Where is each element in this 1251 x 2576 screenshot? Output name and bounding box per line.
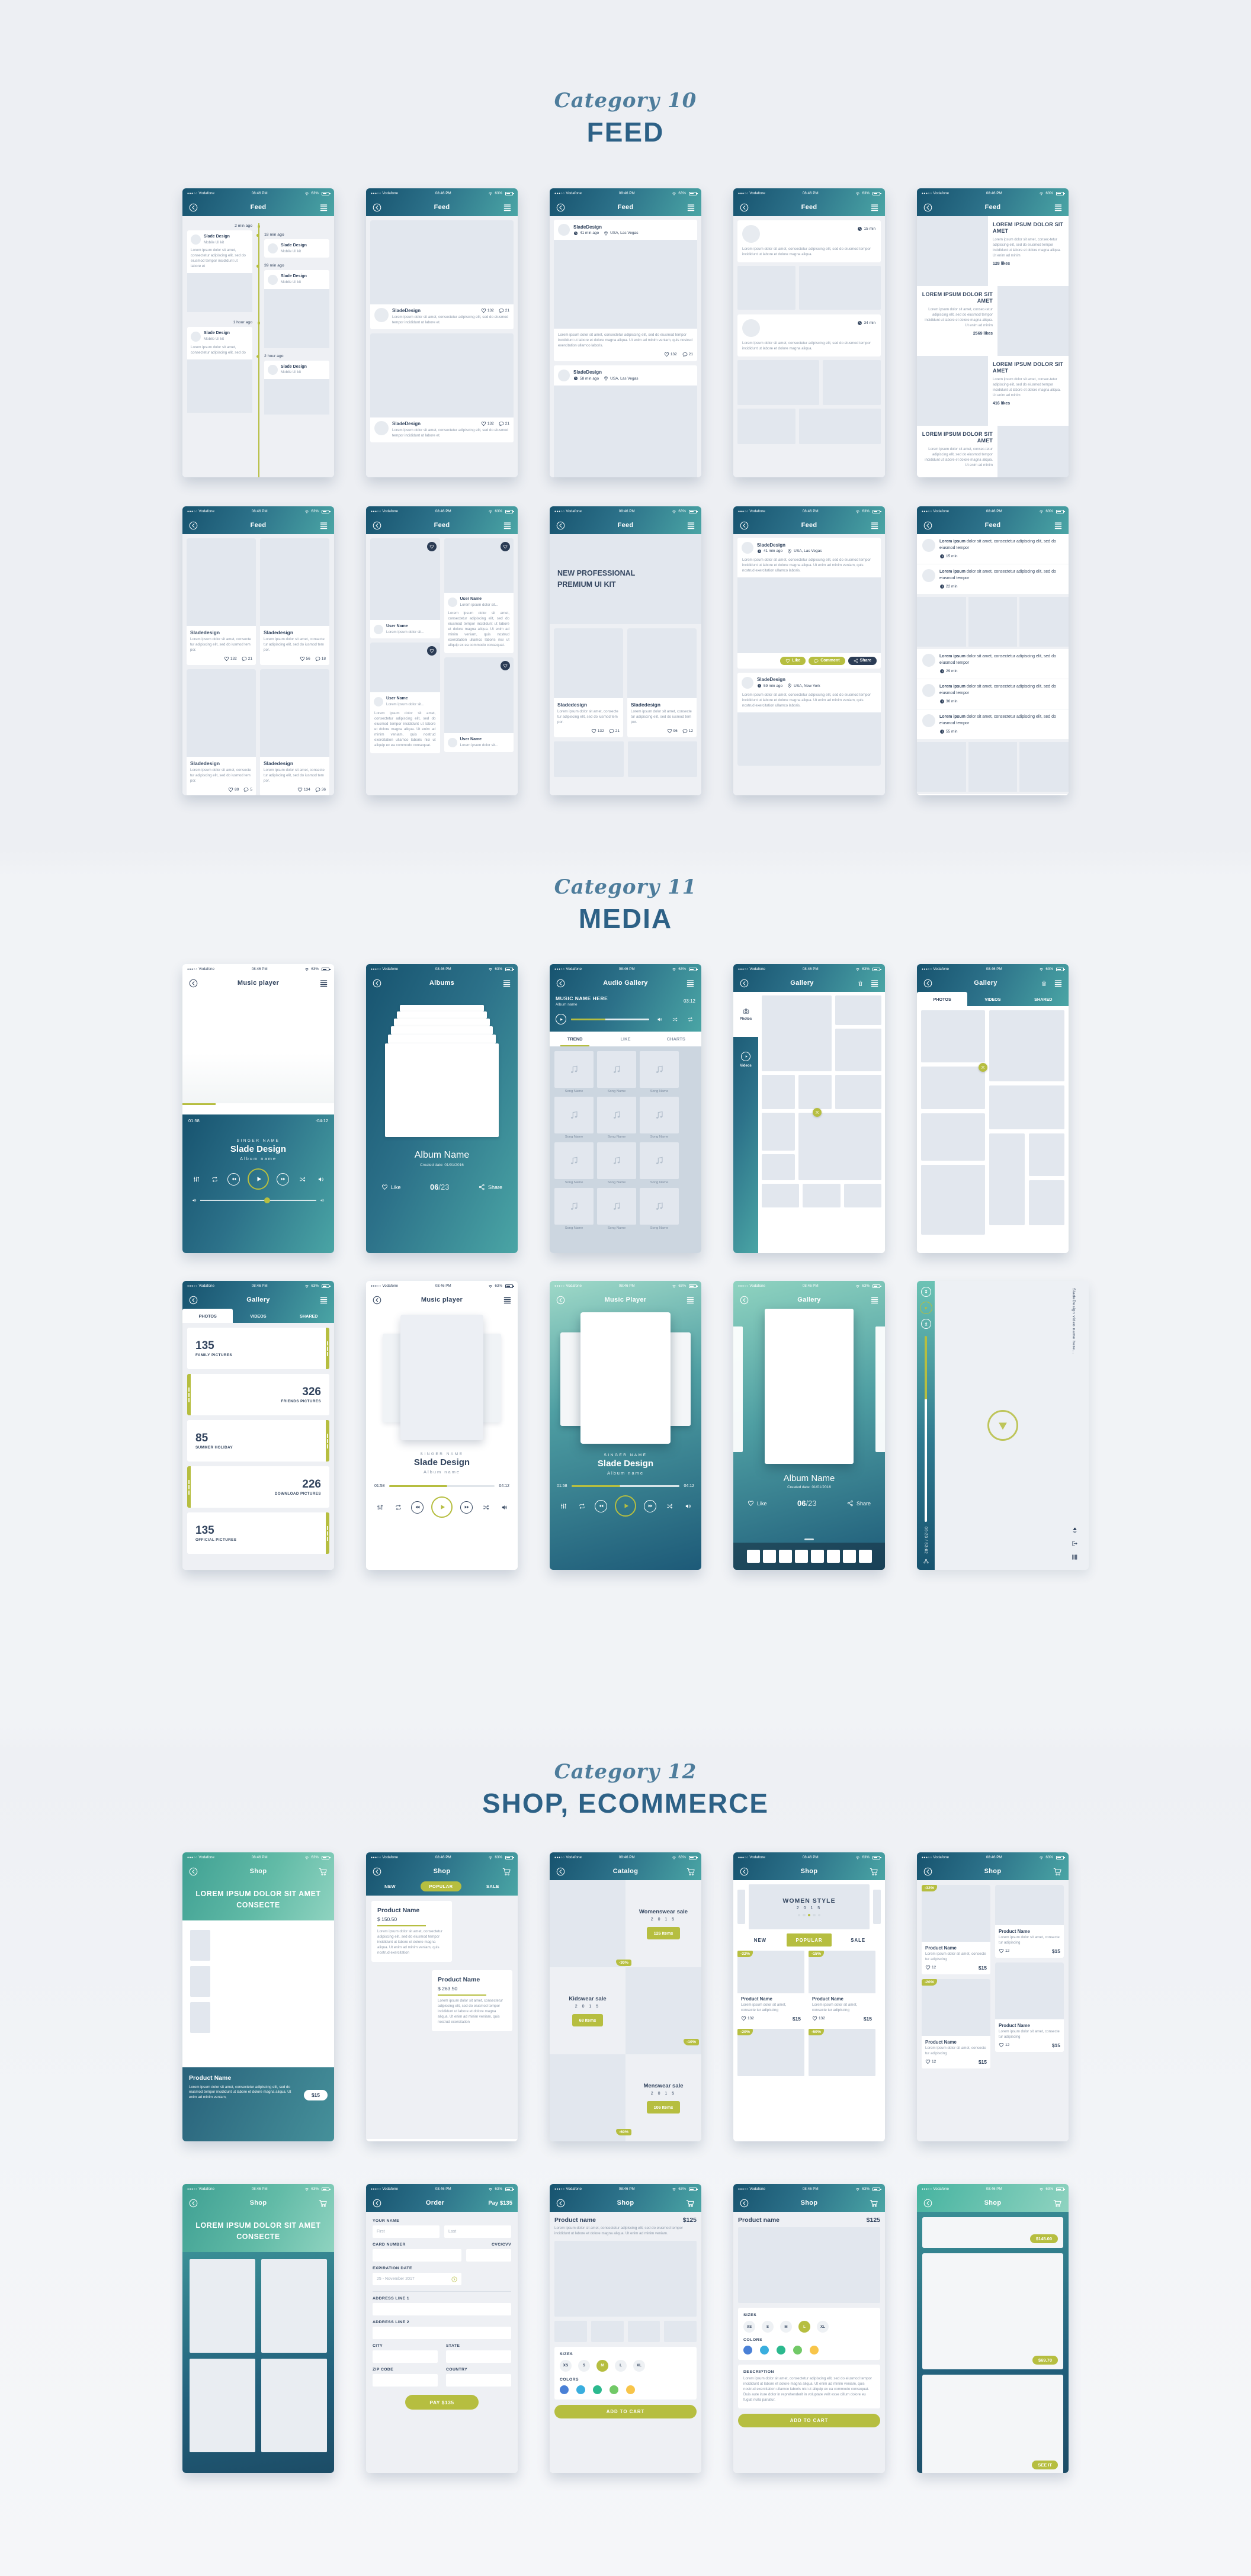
shuffle-button[interactable] <box>480 1502 491 1512</box>
feed-post-card[interactable]: SladeDesign 58 min ago USA, Las Vegas <box>554 365 697 477</box>
gallery-photo[interactable] <box>835 1075 881 1109</box>
feed-post-card[interactable]: Slade DesignMobile UI kit <box>264 361 329 415</box>
gallery-photo[interactable] <box>798 1113 881 1180</box>
shuffle-button[interactable] <box>664 1501 675 1511</box>
menu-button[interactable] <box>318 520 329 531</box>
add-to-cart-button[interactable]: ADD TO CART <box>554 2405 697 2418</box>
product-card[interactable]: Product Name Lorem ipsum dolor sit amet,… <box>995 1962 1064 2052</box>
category-tile[interactable] <box>190 2359 255 2452</box>
product-banner-card[interactable]: SEE IT <box>922 2375 1063 2473</box>
comment-button[interactable]: Comment <box>809 657 845 665</box>
menu-button[interactable] <box>685 202 696 213</box>
comments-count[interactable]: 21 <box>499 421 509 426</box>
carousel-prev-photo[interactable] <box>733 1326 743 1452</box>
gallery-photo[interactable] <box>762 1184 799 1207</box>
feed-post-card[interactable]: SladeDesign 41 min ago USA, Las Vegas Lo… <box>737 538 881 669</box>
back-button[interactable] <box>371 1295 382 1305</box>
back-button[interactable] <box>371 978 382 988</box>
back-button[interactable] <box>922 202 933 213</box>
menu-button[interactable] <box>869 202 880 213</box>
back-button[interactable] <box>371 2198 382 2208</box>
hero-banner[interactable]: WOMEN STYLE 2 0 1 5 <box>749 1884 870 1929</box>
gallery-photo[interactable] <box>762 1113 795 1151</box>
color-option[interactable] <box>610 2385 618 2394</box>
size-option[interactable]: S <box>578 2360 590 2372</box>
carousel-current-photo[interactable] <box>765 1309 854 1464</box>
repeat-button[interactable] <box>685 1014 695 1024</box>
cart-button[interactable] <box>318 2198 329 2208</box>
menu-button[interactable] <box>502 1295 512 1305</box>
tab[interactable]: SHARED <box>1018 992 1069 1006</box>
comments-count[interactable]: 18 <box>315 656 326 661</box>
color-option[interactable] <box>560 2385 569 2394</box>
gallery-photo[interactable] <box>762 1075 795 1109</box>
product-card[interactable]: -50% <box>809 2029 875 2076</box>
article-row[interactable]: LOREM IPSUM DOLOR SIT AMETLorem ipsum do… <box>917 426 1069 477</box>
cvc-field[interactable] <box>466 2249 511 2262</box>
volume-button[interactable] <box>654 1014 665 1024</box>
like-button[interactable]: Like <box>748 1500 767 1507</box>
back-button[interactable] <box>555 202 566 213</box>
product-card[interactable]: -20% Product Name Lorem ipsum dolor sit … <box>922 1979 990 2068</box>
album-list-item[interactable]: 326 FRIENDS PICTURES <box>187 1374 329 1415</box>
likes-count[interactable]: 132 <box>591 728 604 734</box>
drag-handle[interactable] <box>326 1420 329 1462</box>
back-button[interactable] <box>188 1295 198 1305</box>
back-button[interactable] <box>739 978 749 988</box>
feed-post-card[interactable]: Slade DesignMobile UI kit <box>264 270 329 348</box>
tab[interactable]: VIDEOS <box>233 1309 283 1323</box>
product-card[interactable]: -32% Product Name Lorem ipsum dolor sit … <box>737 1951 804 2025</box>
back-button[interactable] <box>739 2198 749 2208</box>
article-row[interactable]: LOREM IPSUM DOLOR SIT AMETLorem ipsum do… <box>917 356 1069 426</box>
menu-button[interactable] <box>502 978 512 988</box>
gallery-photo[interactable] <box>762 995 832 1071</box>
share-button[interactable]: Share <box>479 1184 502 1190</box>
color-option[interactable] <box>810 2346 819 2355</box>
back-button[interactable] <box>739 1295 749 1305</box>
color-option[interactable] <box>593 2385 602 2394</box>
size-option[interactable]: L <box>615 2360 627 2372</box>
back-button[interactable] <box>555 1866 566 1877</box>
size-option[interactable]: XL <box>633 2360 645 2372</box>
state-field[interactable] <box>446 2350 511 2363</box>
price-button[interactable]: $69.70 <box>1032 2356 1058 2365</box>
gallery-photo[interactable] <box>921 1067 985 1109</box>
address1-field[interactable] <box>373 2303 511 2315</box>
likes-count[interactable]: 56 <box>300 656 310 661</box>
comments-count[interactable]: 12 <box>682 728 693 734</box>
size-option[interactable]: M <box>780 2321 792 2333</box>
product-banner-card[interactable]: $69.70 <box>922 2253 1063 2369</box>
back-button[interactable] <box>739 520 749 531</box>
equalizer-button[interactable] <box>558 1501 569 1511</box>
color-option[interactable] <box>777 2346 785 2355</box>
forward-button[interactable] <box>460 1501 473 1514</box>
back-button[interactable] <box>188 1866 198 1877</box>
feed-post-card[interactable]: Slade DesignMobile UI kit Lorem ipsum do… <box>187 230 252 312</box>
menu-button[interactable] <box>869 1295 880 1305</box>
shuffle-button[interactable] <box>669 1014 680 1024</box>
article-row[interactable]: LOREM IPSUM DOLOR SIT AMETLorem ipsum do… <box>917 286 1069 356</box>
comments-count[interactable]: 21 <box>609 728 620 734</box>
menu-button[interactable] <box>685 520 696 531</box>
likes-count[interactable]: 132 <box>224 656 237 661</box>
feed-post-card[interactable]: SladeDesign 41 min ago USA, Las Vegas Lo… <box>554 220 697 361</box>
share-button[interactable]: Share <box>848 657 877 665</box>
feed-grid-card[interactable]: Sladedesign Lorem ipsum dolor sit amet, … <box>554 628 623 737</box>
gallery-photo[interactable] <box>762 1154 795 1180</box>
likes-count[interactable]: 132 <box>812 2016 825 2021</box>
product-image[interactable] <box>738 2227 880 2303</box>
volume-button[interactable] <box>499 1502 509 1512</box>
remove-photo-button[interactable] <box>813 1108 822 1117</box>
photo-carousel[interactable] <box>733 1309 885 1464</box>
drag-handle[interactable] <box>326 1328 329 1369</box>
back-button[interactable] <box>371 1866 382 1877</box>
last-name-field[interactable]: Last <box>444 2225 511 2238</box>
favorite-badge[interactable] <box>501 542 510 551</box>
forward-button[interactable] <box>644 1500 656 1512</box>
comments-count[interactable]: 21 <box>242 656 252 661</box>
news-list-item[interactable]: Lorem ipsum dolor sit amet, consectetur … <box>917 564 1069 595</box>
back-button[interactable] <box>739 1866 749 1877</box>
progress-bar[interactable] <box>389 1485 495 1487</box>
tab[interactable]: CHARTS <box>651 1032 701 1046</box>
user-post-card[interactable]: User NameLorem ipsum dolor sit... Lorem … <box>444 538 514 653</box>
tab[interactable]: TREND <box>550 1032 600 1046</box>
sidebar-item-photos[interactable]: Photos <box>733 992 758 1037</box>
equalizer-button[interactable] <box>374 1502 385 1512</box>
tab[interactable]: VIDEOS <box>967 992 1018 1006</box>
comments-count[interactable]: 21 <box>682 352 693 357</box>
product-card[interactable]: Product Name $ 263.50 Lorem ipsum dolor … <box>432 1970 512 2031</box>
color-option[interactable] <box>760 2346 769 2355</box>
likes-count[interactable]: 132 <box>481 421 494 426</box>
feed-post-card[interactable]: SladeDesign 132 21 Lorem ipsum dolor sit… <box>370 333 514 442</box>
play-button[interactable] <box>920 1302 932 1314</box>
album-stack[interactable] <box>366 992 518 1137</box>
tab-sale[interactable]: SALE <box>835 1933 881 1947</box>
size-option[interactable]: S <box>762 2321 774 2333</box>
gallery-photo[interactable] <box>835 995 881 1025</box>
menu-button[interactable] <box>318 978 329 988</box>
product-card[interactable]: -15% Product Name Lorem ipsum dolor sit … <box>809 1951 875 2025</box>
favorite-badge[interactable] <box>427 646 437 656</box>
likes-count[interactable]: 132 <box>481 308 494 313</box>
back-button[interactable] <box>371 202 382 213</box>
back-button[interactable] <box>555 2198 566 2208</box>
volume-slider[interactable] <box>182 1198 334 1203</box>
product-thumbnail[interactable] <box>554 2321 587 2342</box>
rewind-button[interactable] <box>227 1173 240 1186</box>
catalog-row[interactable]: Menswear sale 2 0 1 5 106 Items <box>550 2054 701 2141</box>
product-card[interactable]: Product Name $ 150.50 Lorem ipsum dolor … <box>371 1901 452 1962</box>
gallery-photo[interactable] <box>921 1010 985 1062</box>
album-stack[interactable] <box>366 1309 518 1446</box>
menu-button[interactable] <box>318 202 329 213</box>
gallery-photo[interactable] <box>844 1184 881 1207</box>
song-item[interactable]: Song Name <box>597 1051 636 1093</box>
first-name-field[interactable]: First <box>373 2225 440 2238</box>
back-button[interactable] <box>922 2198 933 2208</box>
product-card[interactable]: -20% <box>737 2029 804 2076</box>
add-to-cart-button[interactable]: ADD TO CART <box>738 2414 880 2427</box>
sidebar-item-videos[interactable]: Videos <box>733 1037 758 1082</box>
menu-button[interactable] <box>685 978 696 988</box>
feed-post-card[interactable]: SladeDesign 59 min ago USA, New York Lor… <box>737 673 881 766</box>
back-button[interactable] <box>188 202 198 213</box>
drag-handle[interactable] <box>187 1374 191 1415</box>
menu-button[interactable] <box>318 1295 329 1305</box>
song-item[interactable]: Song Name <box>554 1188 594 1230</box>
menu-button[interactable] <box>1053 978 1063 988</box>
product-thumbnail[interactable] <box>190 2002 210 2033</box>
back-button[interactable] <box>922 1866 933 1877</box>
volume-button[interactable] <box>682 1501 693 1511</box>
price-button[interactable]: $145.00 <box>1030 2234 1058 2243</box>
color-option[interactable] <box>793 2346 802 2355</box>
expiration-date-select[interactable]: 25 - November 2017 <box>373 2273 461 2285</box>
menu-button[interactable] <box>1053 520 1063 531</box>
size-option[interactable]: XS <box>743 2321 755 2333</box>
tab[interactable]: PHOTOS <box>182 1309 233 1323</box>
forward-button[interactable] <box>921 1287 931 1297</box>
tab-popular[interactable]: POPULAR <box>421 1881 461 1891</box>
volume-icon[interactable] <box>1072 1527 1078 1533</box>
feed-post-card[interactable]: Slade DesignMobile UI kit <box>264 239 329 258</box>
menu-icon[interactable] <box>1072 1554 1078 1560</box>
menu-button[interactable] <box>685 1295 696 1305</box>
size-option[interactable]: XS <box>560 2360 572 2372</box>
rewind-button[interactable] <box>921 1319 931 1329</box>
filmstrip[interactable] <box>733 1543 885 1570</box>
gallery-photo[interactable] <box>989 1133 1025 1225</box>
tab-popular[interactable]: POPULAR <box>787 1933 832 1947</box>
cart-button[interactable] <box>318 1866 329 1877</box>
items-count-button[interactable]: 106 Items <box>647 2101 681 2114</box>
menu-button[interactable] <box>502 202 512 213</box>
user-post-card[interactable]: User NameLorem ipsum dolor sit... <box>444 657 514 751</box>
song-item[interactable]: Song Name <box>640 1097 679 1139</box>
feed-post-card[interactable]: 34 min Lorem ipsum dolor sit amet, conse… <box>737 314 881 356</box>
menu-button[interactable] <box>1053 202 1063 213</box>
catalog-row[interactable]: Womenswear sale 2 0 1 5 126 Items <box>550 1880 701 1967</box>
song-item[interactable]: Song Name <box>597 1097 636 1139</box>
city-field[interactable] <box>373 2350 438 2363</box>
menu-button[interactable] <box>869 520 880 531</box>
hero-banner[interactable]: NEW PROFESSIONAL PREMIUM UI KIT <box>550 534 701 624</box>
back-button[interactable] <box>188 520 198 531</box>
carousel-next-photo[interactable] <box>875 1326 885 1452</box>
back-button[interactable] <box>555 1295 566 1305</box>
play-button[interactable] <box>431 1496 453 1518</box>
progress-bar[interactable] <box>572 1485 680 1487</box>
carousel-prev[interactable] <box>737 1890 745 1924</box>
song-item[interactable]: Song Name <box>640 1142 679 1184</box>
album-list-item[interactable]: 85 SUMMER HOLIDAY <box>187 1420 329 1462</box>
comments-count[interactable]: 36 <box>315 787 326 792</box>
product-thumbnail[interactable] <box>664 2321 697 2342</box>
product-thumbnail[interactable] <box>190 1966 210 1997</box>
album-list-item[interactable]: 135 OFFICIAL PICTURES <box>187 1512 329 1554</box>
cart-button[interactable] <box>1053 2198 1063 2208</box>
back-button[interactable] <box>555 520 566 531</box>
comments-count[interactable]: 5 <box>243 787 252 792</box>
pay-header-button[interactable]: Pay $135 <box>488 2200 512 2206</box>
user-post-card[interactable]: User NameLorem ipsum dolor sit... Lorem … <box>370 643 440 753</box>
back-button[interactable] <box>922 520 933 531</box>
cart-button[interactable] <box>869 1866 880 1877</box>
address2-field[interactable] <box>373 2327 511 2339</box>
song-item[interactable]: Song Name <box>554 1097 594 1139</box>
cart-button[interactable] <box>685 2198 696 2208</box>
album-stack[interactable] <box>550 1309 701 1446</box>
carousel-dots[interactable] <box>798 1914 821 1917</box>
back-button[interactable] <box>739 202 749 213</box>
back-button[interactable] <box>555 978 566 988</box>
repeat-button[interactable] <box>209 1174 220 1184</box>
remove-photo-button[interactable] <box>979 1063 987 1072</box>
repeat-button[interactable] <box>576 1501 587 1511</box>
export-icon[interactable] <box>1072 1540 1078 1547</box>
size-option[interactable]: XL <box>817 2321 829 2333</box>
album-list-item[interactable]: 226 DOWNLOAD PICTURES <box>187 1466 329 1508</box>
progress-bar[interactable] <box>182 1103 334 1105</box>
product-image[interactable] <box>554 2241 697 2317</box>
rewind-button[interactable] <box>411 1501 424 1514</box>
feed-grid-card[interactable]: Sladedesign Lorem ipsum dolor sit amet, … <box>627 628 697 737</box>
zip-field[interactable] <box>373 2374 438 2387</box>
category-tile[interactable] <box>261 2359 327 2452</box>
favorite-badge[interactable] <box>427 542 437 551</box>
feed-post-card[interactable]: 15 min Lorem ipsum dolor sit amet, conse… <box>737 220 881 262</box>
back-button[interactable] <box>188 2198 198 2208</box>
drag-handle[interactable] <box>187 1466 191 1508</box>
catalog-row[interactable]: Kidswear sale 2 0 1 5 68 Items <box>550 1967 701 2054</box>
gallery-photo[interactable] <box>921 1165 985 1235</box>
play-button[interactable] <box>556 1014 566 1024</box>
news-list-item[interactable]: Lorem ipsum dolor sit amet, consectetur … <box>917 709 1069 740</box>
feed-grid-card[interactable]: Sladedesign Lorem ipsum dolor sit amet, … <box>260 669 329 795</box>
news-list-item[interactable]: Lorem ipsum dolor sit amet, consectetur … <box>917 534 1069 564</box>
feed-post-card[interactable]: SladeDesign 132 21 Lorem ipsum dolor sit… <box>370 220 514 329</box>
play-button[interactable] <box>615 1495 636 1517</box>
tab[interactable]: PHOTOS <box>917 992 967 1006</box>
trash-button[interactable] <box>855 978 865 988</box>
news-list-item[interactable]: Lorem ipsum dolor sit amet, consectetur … <box>917 649 1069 679</box>
menu-button[interactable] <box>869 978 880 988</box>
trash-button[interactable] <box>1038 978 1049 988</box>
song-item[interactable]: Song Name <box>597 1188 636 1230</box>
gallery-photo[interactable] <box>803 1184 840 1207</box>
article-row[interactable]: LOREM IPSUM DOLOR SIT AMETLorem ipsum do… <box>917 216 1069 286</box>
user-post-card[interactable]: User NameLorem ipsum dolor sit... <box>370 538 440 638</box>
pay-button[interactable]: PAY $135 <box>405 2395 479 2410</box>
likes-count[interactable]: 132 <box>741 2016 754 2021</box>
comments-count[interactable]: 21 <box>499 308 509 313</box>
back-button[interactable] <box>188 978 198 988</box>
size-option[interactable]: M <box>596 2360 608 2372</box>
feed-grid-card[interactable]: Sladedesign Lorem ipsum dolor sit amet, … <box>187 538 256 665</box>
likes-count[interactable]: 89 <box>228 787 239 792</box>
color-option[interactable] <box>576 2385 585 2394</box>
likes-count[interactable]: 12 <box>925 2059 936 2064</box>
cart-button[interactable] <box>685 1866 696 1877</box>
back-button[interactable] <box>371 520 382 531</box>
drag-handle[interactable] <box>326 1512 329 1554</box>
product-card[interactable]: Product Name Lorem ipsum dolor sit amet,… <box>995 1885 1064 1958</box>
likes-count[interactable]: 132 <box>664 352 677 357</box>
items-count-button[interactable]: 126 Items <box>647 1927 681 1939</box>
category-tile[interactable] <box>190 2259 255 2353</box>
likes-count[interactable]: 12 <box>999 2042 1009 2048</box>
cart-button[interactable] <box>502 1866 512 1877</box>
song-item[interactable]: Song Name <box>640 1188 679 1230</box>
share-button[interactable]: Share <box>847 1500 871 1507</box>
gallery-photo[interactable] <box>989 1010 1064 1081</box>
volume-button[interactable] <box>315 1174 326 1184</box>
progress-bar[interactable] <box>571 1019 649 1020</box>
product-banner-card[interactable]: $145.00 <box>922 2217 1063 2248</box>
tab-new[interactable]: NEW <box>737 1933 783 1947</box>
gallery-photo[interactable] <box>1029 1133 1064 1176</box>
gallery-photo[interactable] <box>989 1085 1064 1129</box>
product-thumbnail[interactable] <box>190 1930 210 1961</box>
song-item[interactable]: Song Name <box>554 1142 594 1184</box>
play-button[interactable] <box>248 1168 269 1190</box>
forward-button[interactable] <box>277 1173 289 1186</box>
see-it-button[interactable]: SEE IT <box>1032 2461 1058 2469</box>
likes-count[interactable]: 12 <box>999 1948 1009 1954</box>
tab[interactable]: SHARED <box>284 1309 334 1323</box>
gallery-photo[interactable] <box>798 1075 832 1109</box>
likes-count[interactable]: 134 <box>297 787 310 792</box>
rewind-button[interactable] <box>595 1500 607 1512</box>
card-number-field[interactable] <box>373 2249 461 2262</box>
cart-button[interactable] <box>869 2198 880 2208</box>
tab-new[interactable]: NEW <box>384 1884 396 1889</box>
feed-grid-card[interactable]: Sladedesign Lorem ipsum dolor sit amet, … <box>187 669 256 795</box>
repeat-button[interactable] <box>393 1502 403 1512</box>
tab[interactable]: LIKE <box>600 1032 650 1046</box>
carousel-next[interactable] <box>873 1890 881 1924</box>
color-option[interactable] <box>626 2385 635 2394</box>
song-item[interactable]: Song Name <box>640 1051 679 1093</box>
gallery-photo[interactable] <box>1029 1180 1064 1225</box>
likes-count[interactable]: 96 <box>667 728 678 734</box>
product-thumbnail[interactable] <box>628 2321 660 2342</box>
product-card[interactable]: -32% Product Name Lorem ipsum dolor sit … <box>922 1885 990 1974</box>
menu-button[interactable] <box>502 520 512 531</box>
feed-post-card[interactable]: Slade DesignMobile UI kit Lorem ipsum do… <box>187 327 252 412</box>
like-button[interactable]: Like <box>780 657 806 665</box>
size-option[interactable]: L <box>798 2321 810 2333</box>
product-thumbnail[interactable] <box>591 2321 624 2342</box>
country-field[interactable] <box>446 2374 511 2387</box>
news-list-item[interactable]: Lorem ipsum dolor sit amet, consectetur … <box>917 679 1069 709</box>
items-count-button[interactable]: 68 Items <box>572 2014 604 2026</box>
feed-grid-card[interactable]: Sladedesign Lorem ipsum dolor sit amet, … <box>260 538 329 665</box>
like-button[interactable]: Like <box>381 1184 401 1190</box>
back-button[interactable] <box>922 978 933 988</box>
shuffle-button[interactable] <box>297 1174 307 1184</box>
equalizer-button[interactable] <box>191 1174 201 1184</box>
likes-count[interactable]: 12 <box>925 1965 936 1970</box>
video-progress-bar[interactable] <box>925 1336 927 1522</box>
gallery-photo[interactable] <box>835 1029 881 1071</box>
song-item[interactable]: Song Name <box>597 1142 636 1184</box>
